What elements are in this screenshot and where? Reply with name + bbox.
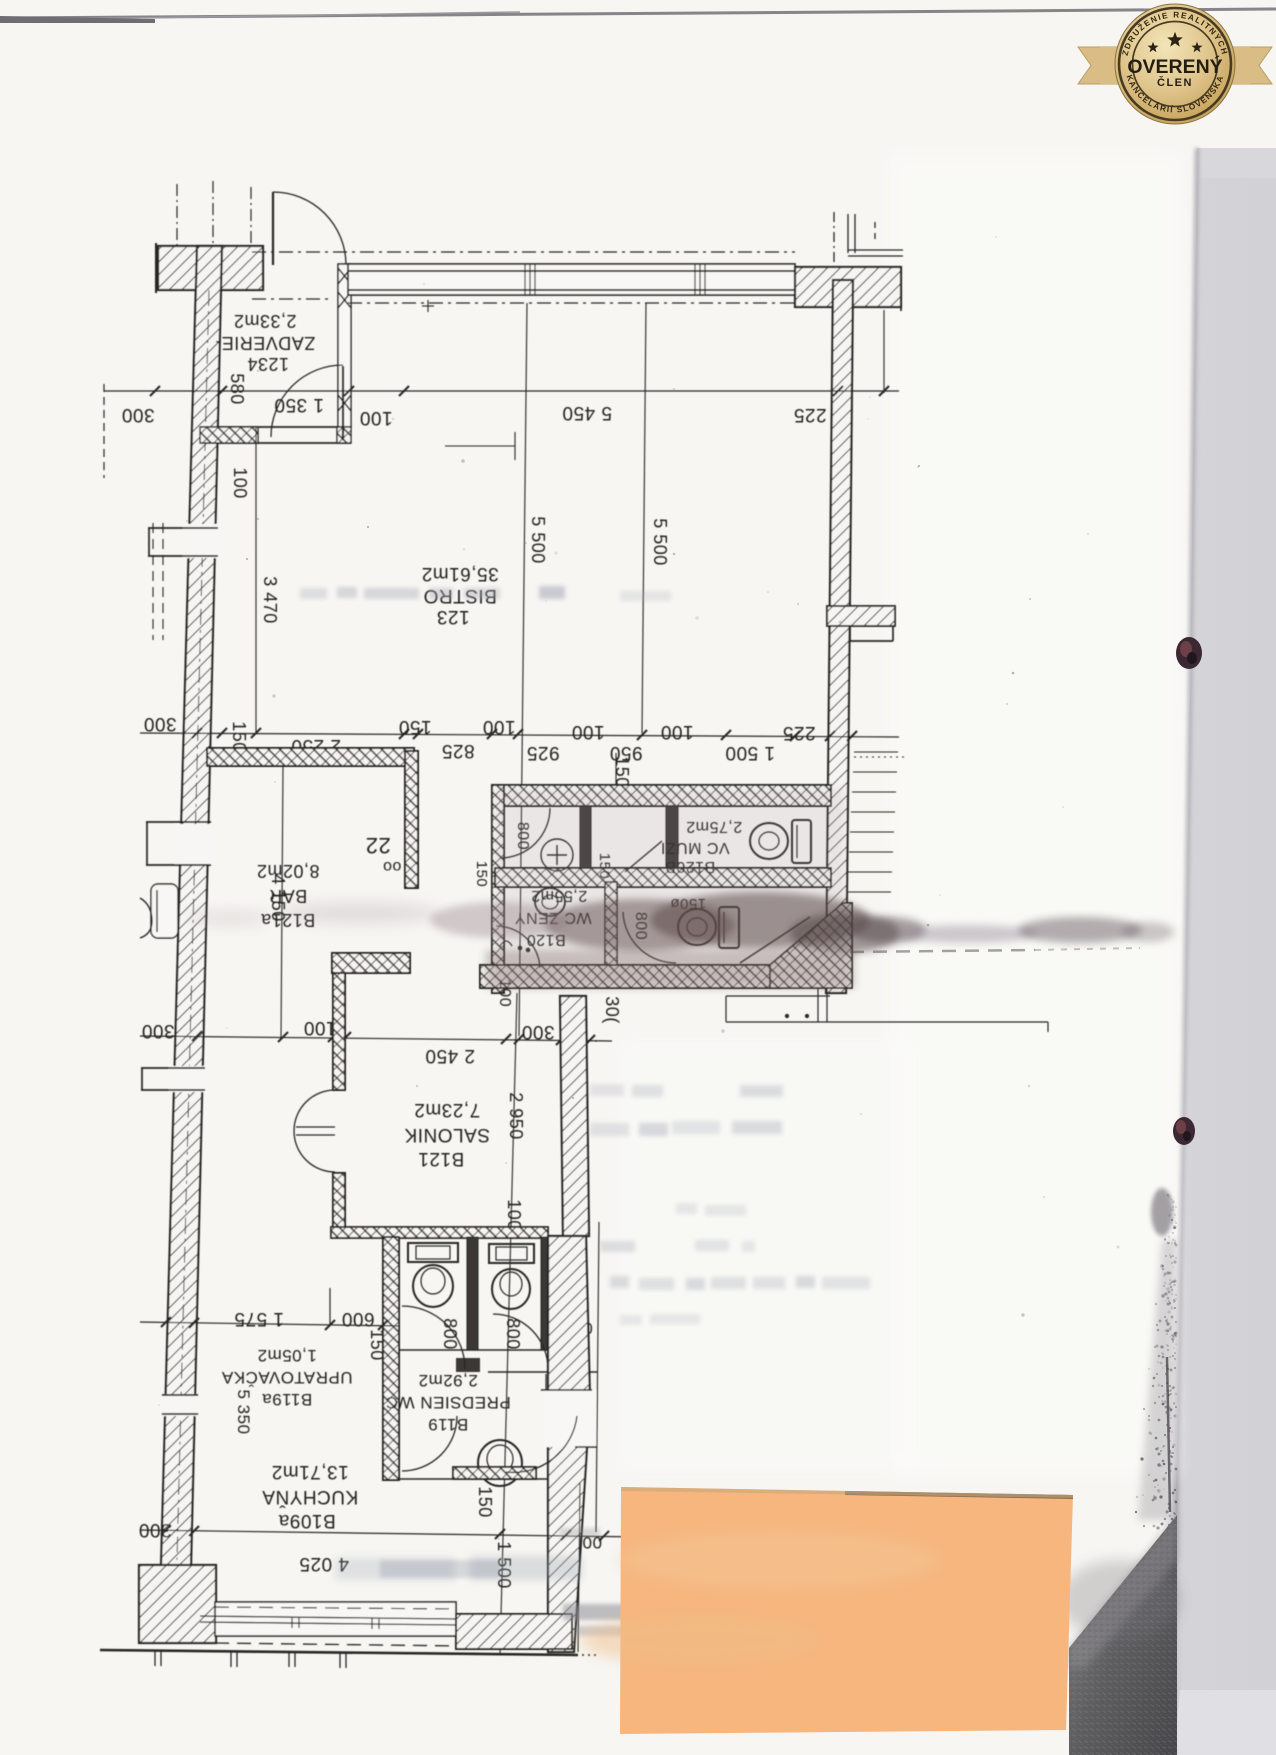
svg-text:600: 600 <box>341 1308 374 1329</box>
svg-text:2,33m2: 2,33m2 <box>233 311 296 331</box>
svg-text:B119: B119 <box>428 1415 468 1434</box>
svg-text:925: 925 <box>526 742 559 763</box>
svg-text:UPRATOVAČKA: UPRATOVAČKA <box>221 1368 352 1387</box>
svg-text:100: 100 <box>660 721 693 742</box>
svg-text:100: 100 <box>359 407 392 428</box>
svg-text:30(: 30( <box>602 996 622 1024</box>
svg-text:100: 100 <box>230 467 250 499</box>
svg-text:ČLEN: ČLEN <box>1157 76 1193 89</box>
svg-text:800: 800 <box>440 1318 460 1350</box>
svg-text:B121: B121 <box>418 1148 464 1169</box>
svg-text:100: 100 <box>571 721 604 742</box>
svg-text:2,92m2: 2,92m2 <box>418 1371 478 1390</box>
svg-text:PREDSIEN WC: PREDSIEN WC <box>385 1393 510 1412</box>
svg-text:7,23m2: 7,23m2 <box>414 1099 480 1120</box>
svg-text:B119a: B119a <box>262 1390 312 1409</box>
svg-text:150: 150 <box>612 756 632 788</box>
svg-text:150: 150 <box>475 1486 495 1518</box>
svg-text:1 500: 1 500 <box>725 742 775 763</box>
svg-text:35,61m2: 35,61m2 <box>421 563 498 584</box>
svg-text:OVERENÝ: OVERENÝ <box>1127 54 1222 78</box>
svg-text:825: 825 <box>441 740 474 761</box>
svg-text:225: 225 <box>782 722 815 743</box>
svg-text:oo: oo <box>383 858 402 875</box>
svg-text:B109a: B109a <box>278 1510 335 1531</box>
svg-text:580: 580 <box>227 373 247 405</box>
svg-text:100: 100 <box>504 1199 524 1231</box>
svg-text:KUCHYŇA: KUCHYŇA <box>262 1486 358 1508</box>
svg-text:5 350: 5 350 <box>234 1389 253 1434</box>
svg-text:3 470: 3 470 <box>260 576 280 624</box>
svg-text:150: 150 <box>473 861 490 888</box>
svg-text:800: 800 <box>503 1318 523 1350</box>
svg-text:300: 300 <box>143 713 176 734</box>
svg-text:300: 300 <box>521 1021 554 1042</box>
svg-text:300: 300 <box>141 1020 174 1041</box>
svg-text:SALONIK: SALONIK <box>404 1124 490 1145</box>
svg-text:1 575: 1 575 <box>234 1308 284 1329</box>
svg-text:225: 225 <box>793 404 826 425</box>
svg-text:2 450: 2 450 <box>425 1045 475 1066</box>
svg-text:100: 100 <box>482 716 515 737</box>
svg-text:5 450: 5 450 <box>562 402 612 423</box>
svg-text:13,71m2: 13,71m2 <box>271 1461 348 1482</box>
svg-text:5 500: 5 500 <box>528 516 548 564</box>
svg-text:ZADVERIE-: ZADVERIE- <box>215 333 316 353</box>
svg-text:300: 300 <box>138 1519 171 1540</box>
svg-text:1 350: 1 350 <box>274 394 324 415</box>
svg-text:2 950: 2 950 <box>506 1092 526 1140</box>
svg-text:123: 123 <box>436 606 469 627</box>
svg-text:150: 150 <box>398 716 431 737</box>
svg-text:1,05m2: 1,05m2 <box>257 1346 317 1365</box>
svg-text:5 500: 5 500 <box>650 518 670 566</box>
svg-text:300: 300 <box>121 404 154 425</box>
svg-text:150: 150 <box>367 1329 387 1361</box>
svg-text:22: 22 <box>365 833 390 858</box>
svg-text:1234: 1234 <box>247 354 289 374</box>
svg-text:100: 100 <box>303 1017 336 1038</box>
